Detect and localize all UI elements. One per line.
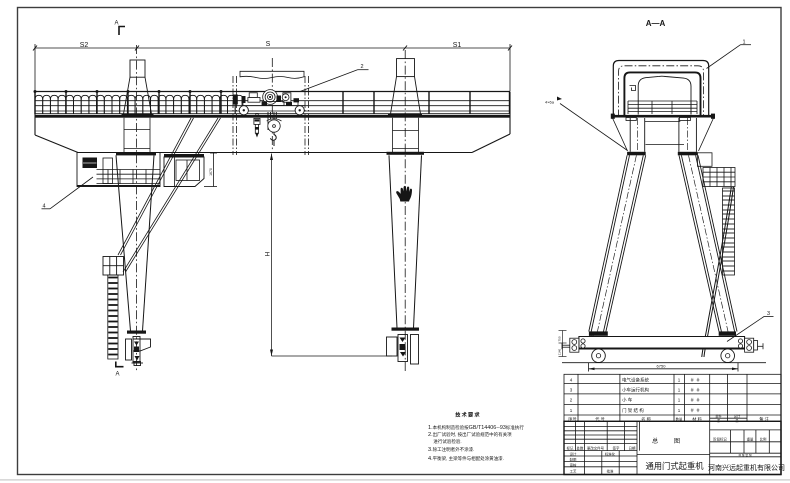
svg-text:4.平衡梁, 主梁等件与相配处涂黄油漆.: 4.平衡梁, 主梁等件与相配处涂黄油漆. (428, 455, 504, 462)
svg-text:总计: 总计 (734, 414, 741, 419)
svg-text:日期: 日期 (629, 445, 636, 450)
svg-text:更改文件号: 更改文件号 (587, 445, 605, 450)
svg-text:＃ ＃: ＃ ＃ (690, 388, 700, 393)
svg-text:标准化: 标准化 (605, 452, 616, 457)
svg-text:标记: 标记 (567, 445, 574, 450)
svg-text:S1: S1 (453, 42, 462, 49)
svg-text:电气设备系统: 电气设备系统 (622, 377, 649, 384)
svg-text:S: S (266, 41, 271, 48)
svg-text:750: 750 (558, 336, 562, 341)
svg-text:S2: S2 (80, 42, 89, 49)
svg-text:2: 2 (360, 64, 363, 70)
svg-text:处数: 处数 (577, 445, 584, 450)
svg-text:A: A (114, 21, 118, 27)
svg-text:小车运行机构: 小车运行机构 (622, 387, 649, 394)
svg-text:A—A: A—A (646, 19, 666, 28)
svg-text:＃ ＃: ＃ ＃ (690, 408, 700, 413)
svg-text:河南兴远起重机有限公司: 河南兴远起重机有限公司 (708, 463, 785, 472)
svg-text:＃ ＃: ＃ ＃ (690, 378, 700, 383)
svg-text:进行试验检验.: 进行试验检验. (433, 438, 461, 445)
svg-text:工艺: 工艺 (570, 469, 577, 474)
svg-text:H: H (265, 251, 272, 256)
svg-text:总 图: 总 图 (652, 437, 687, 445)
svg-text:比例: 比例 (760, 436, 767, 441)
svg-text:1.本机构制造检验按GB/T14406--93标准执行: 1.本机构制造检验按GB/T14406--93标准执行 (428, 424, 524, 431)
svg-text:审核: 审核 (570, 462, 577, 467)
svg-text:小 车: 小 车 (622, 397, 633, 404)
svg-text:批准: 批准 (607, 469, 614, 474)
svg-text:4×6a: 4×6a (545, 100, 555, 105)
svg-text:通用门式起重机: 通用门式起重机 (645, 461, 704, 471)
svg-text:门 架 结 构: 门 架 结 构 (622, 407, 644, 414)
svg-text:阶段标记: 阶段标记 (713, 436, 727, 441)
svg-text:1670: 1670 (209, 168, 213, 176)
svg-text:2.出厂试验时, 按出厂试验规范中的有关项: 2.出厂试验时, 按出厂试验规范中的有关项 (428, 431, 512, 438)
svg-text:A: A (115, 372, 119, 378)
svg-text:530: 530 (589, 333, 594, 337)
svg-text:签字: 签字 (613, 445, 620, 450)
svg-text:3.除工注明者外不涂漆.: 3.除工注明者外不涂漆. (428, 446, 474, 453)
svg-text:＃ ＃: ＃ ＃ (690, 398, 700, 403)
svg-text:6750: 6750 (657, 363, 667, 368)
svg-text:制图: 制图 (570, 457, 577, 462)
svg-text:单件: 单件 (715, 414, 722, 419)
svg-text:重量: 重量 (747, 436, 754, 441)
svg-text:设计: 设计 (570, 452, 577, 457)
svg-text:1140: 1140 (558, 348, 562, 355)
svg-text:共 张 第 张: 共 张 第 张 (738, 453, 752, 457)
svg-text:技术要求: 技术要求 (455, 410, 481, 418)
